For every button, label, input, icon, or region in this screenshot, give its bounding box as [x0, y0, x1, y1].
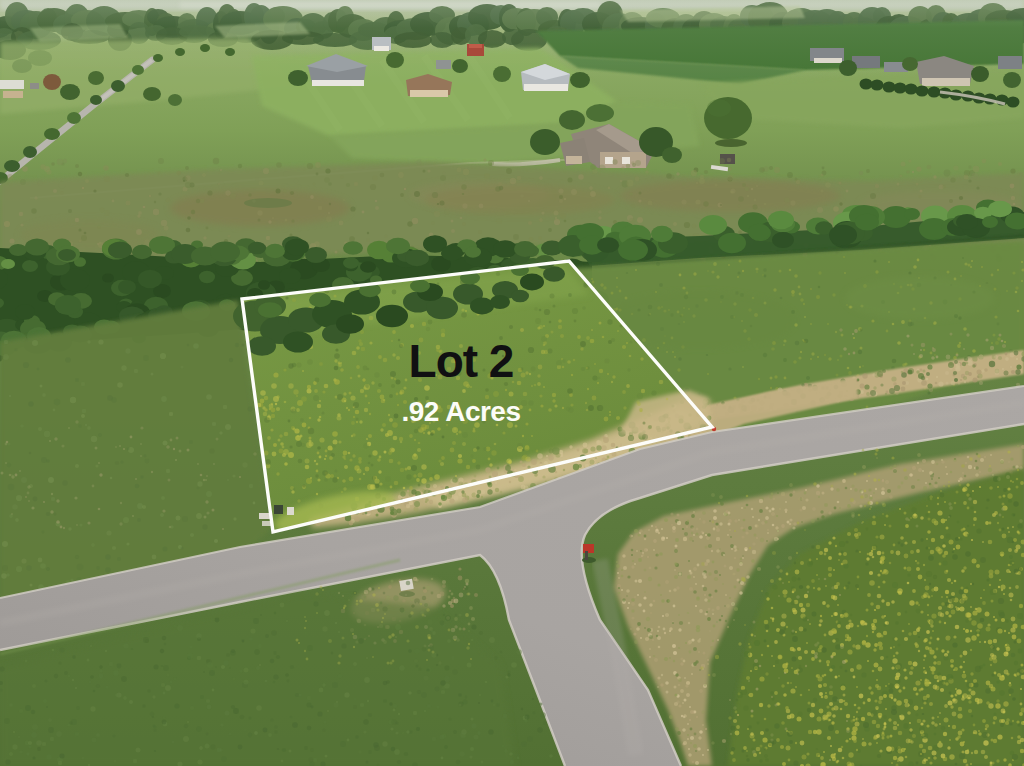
- svg-text:.92 Acres: .92 Acres: [402, 396, 521, 427]
- svg-text:Lot 2: Lot 2: [409, 335, 514, 387]
